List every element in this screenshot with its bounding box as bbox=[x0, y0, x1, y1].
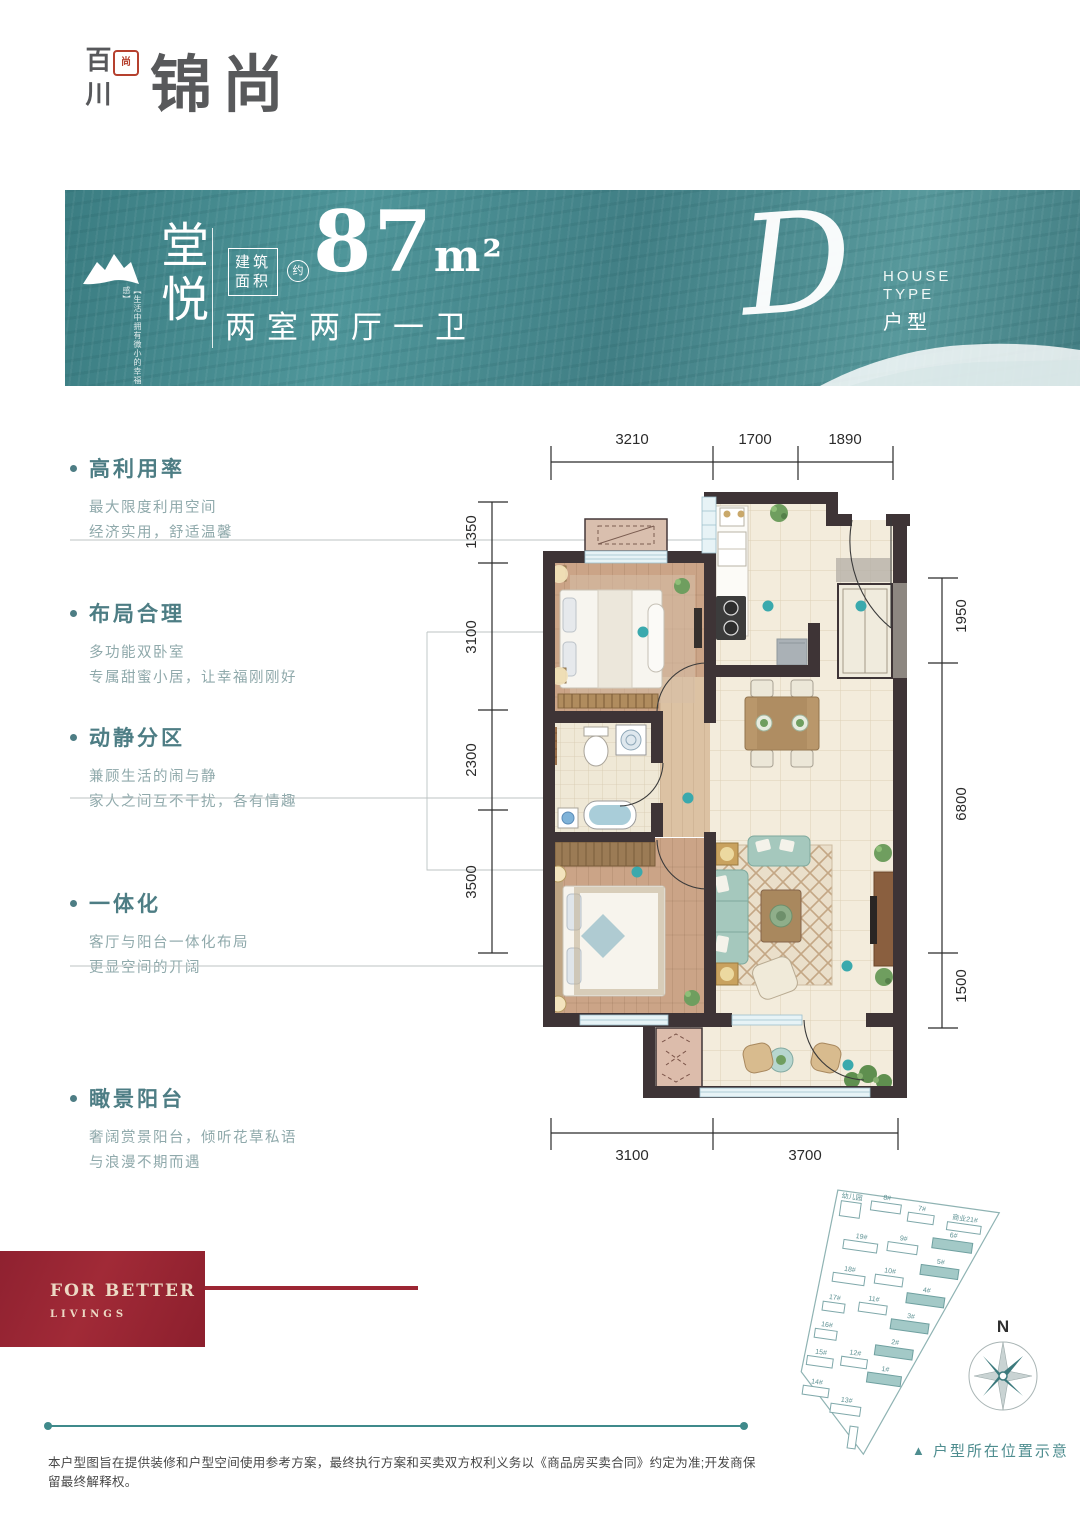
svg-text:3210: 3210 bbox=[615, 431, 648, 448]
svg-text:1950: 1950 bbox=[953, 599, 970, 632]
triangle-marker-icon: ▲ bbox=[912, 1443, 927, 1458]
ac-platform bbox=[656, 1028, 702, 1088]
svg-text:3100: 3100 bbox=[615, 1147, 648, 1164]
svg-text:6#: 6# bbox=[949, 1232, 958, 1240]
svg-text:3100: 3100 bbox=[463, 620, 480, 653]
svg-text:3700: 3700 bbox=[788, 1147, 821, 1164]
svg-text:3#: 3# bbox=[907, 1313, 916, 1321]
rule-dot-left bbox=[44, 1422, 52, 1430]
bedroom2-furniture bbox=[550, 565, 702, 708]
svg-text:7#: 7# bbox=[918, 1205, 927, 1213]
teal-rule bbox=[48, 1425, 744, 1427]
svg-text:N: N bbox=[997, 1317, 1009, 1336]
entry-furniture bbox=[836, 558, 892, 678]
wall-stone-accent bbox=[893, 583, 907, 678]
rule-dot-right bbox=[740, 1422, 748, 1430]
svg-text:8#: 8# bbox=[883, 1195, 892, 1203]
svg-text:2300: 2300 bbox=[463, 743, 480, 776]
svg-text:1350: 1350 bbox=[463, 515, 480, 548]
svg-text:1500: 1500 bbox=[953, 969, 970, 1002]
svg-text:6800: 6800 bbox=[953, 787, 970, 820]
svg-text:1#: 1# bbox=[881, 1366, 890, 1374]
site-plan: 幼儿园 8# 7# 商业21# 6# 19# 9# 5# 18# 10# 4# … bbox=[770, 1180, 1080, 1480]
svg-text:1700: 1700 bbox=[738, 431, 771, 448]
svg-text:3500: 3500 bbox=[463, 865, 480, 898]
svg-text:2#: 2# bbox=[891, 1339, 900, 1347]
svg-text:4#: 4# bbox=[922, 1287, 931, 1295]
svg-text:5#: 5# bbox=[936, 1259, 945, 1267]
svg-text:1890: 1890 bbox=[828, 431, 861, 448]
svg-text:9#: 9# bbox=[899, 1235, 908, 1243]
brand-tagline-block: FOR BETTER LIVINGS bbox=[0, 1251, 205, 1347]
disclaimer-text: 本户型图旨在提供装修和户型空间使用参考方案，最终执行方案和买卖双方权利义务以《商… bbox=[48, 1452, 758, 1490]
compass-icon: N bbox=[969, 1317, 1037, 1410]
red-divider-line bbox=[205, 1286, 418, 1290]
site-plan-caption: ▲ 户型所在位置示意 bbox=[912, 1440, 1069, 1461]
building-kindergarten bbox=[839, 1201, 861, 1219]
